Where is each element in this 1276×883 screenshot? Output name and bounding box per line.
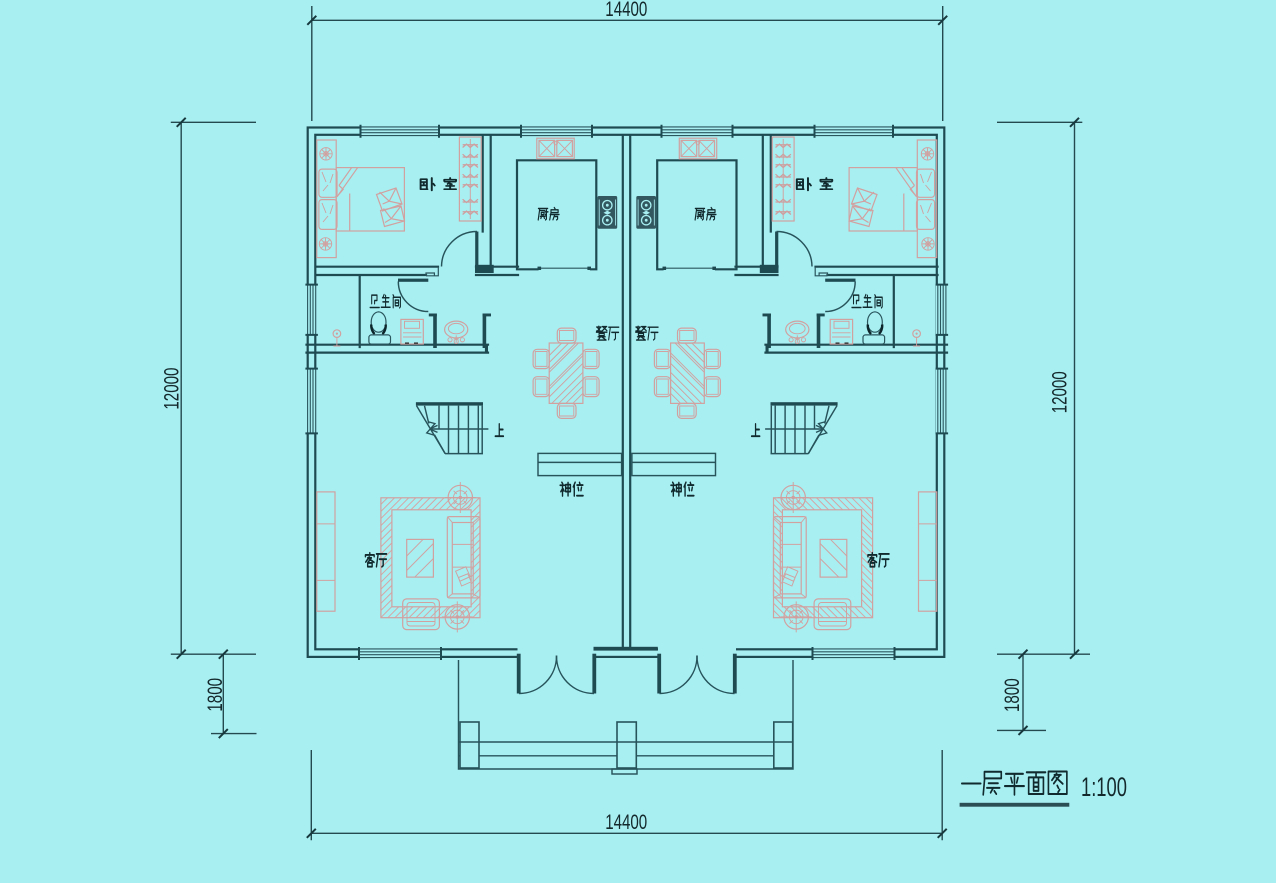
svg-text:14400: 14400 — [605, 0, 647, 20]
svg-text:1800: 1800 — [999, 678, 1023, 712]
svg-text:1800: 1800 — [203, 678, 227, 712]
svg-text:14400: 14400 — [605, 809, 647, 833]
svg-text:12000: 12000 — [159, 368, 183, 410]
svg-text:12000: 12000 — [1047, 371, 1071, 413]
svg-text:1:100: 1:100 — [1081, 771, 1127, 801]
